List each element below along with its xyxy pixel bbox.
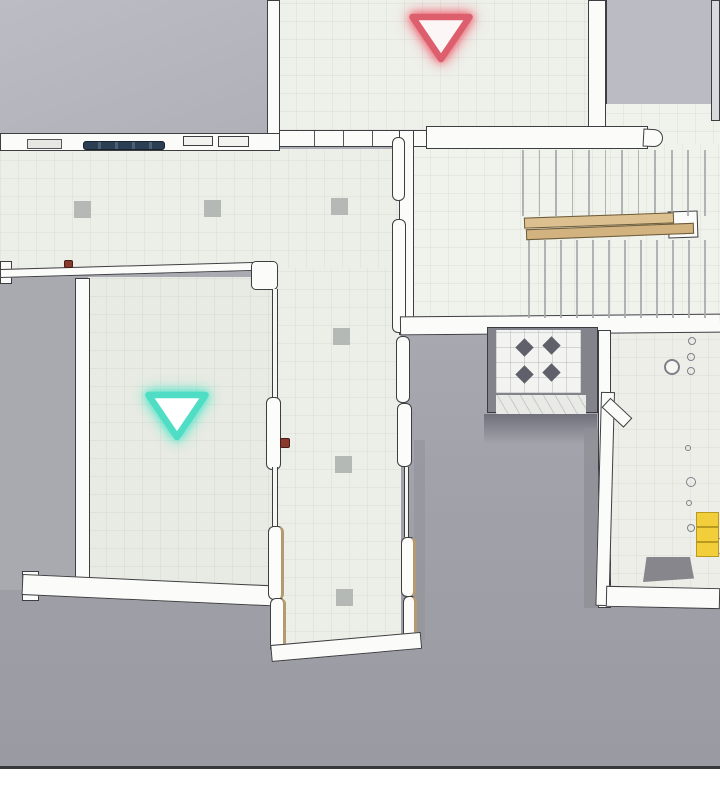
wall-leftroom-left (75, 278, 90, 591)
white-knob (710, 538, 720, 554)
floorplan-viewport (0, 0, 720, 800)
floor-hallway (0, 149, 401, 269)
door-right-a[interactable] (392, 137, 405, 201)
wall-topcenter-right (588, 0, 606, 131)
stair-newel-post (668, 210, 699, 238)
floor-bathroom (600, 326, 720, 592)
door-right-e[interactable] (401, 537, 416, 597)
wall-right-edge (711, 0, 720, 121)
wall-recess-panel (27, 139, 62, 149)
door-right-c[interactable] (396, 336, 410, 403)
door-left-b[interactable] (268, 526, 284, 600)
wall-corridor-right-glass (404, 467, 409, 537)
wall-corridor-left-glass (272, 289, 278, 399)
viewport-bottom-edge (0, 766, 720, 769)
coat-rack-fixture (83, 141, 165, 150)
wall-corridor-left-glass2 (272, 467, 278, 528)
wall-bathroom-bottom (606, 586, 720, 609)
window-frame-b (218, 136, 249, 147)
window-mullion (372, 131, 373, 146)
floor-corridor (277, 268, 401, 650)
floor-left-room (88, 277, 272, 585)
window-mullion (314, 131, 315, 146)
door-left-a[interactable] (266, 397, 281, 470)
wall-stairwell-ledge (426, 126, 648, 149)
void-room-top-left (0, 0, 268, 134)
floor-top-center-room (278, 0, 590, 130)
wall-topcenter-left (267, 0, 280, 134)
elevator-tiles (496, 330, 581, 393)
window-frame-a (183, 136, 213, 146)
wall-corner-post (251, 261, 278, 290)
elevator-sill-tiles (496, 395, 586, 414)
void-left-strip (0, 278, 76, 590)
door-right-d[interactable] (397, 403, 412, 467)
window-mullion (343, 131, 344, 146)
